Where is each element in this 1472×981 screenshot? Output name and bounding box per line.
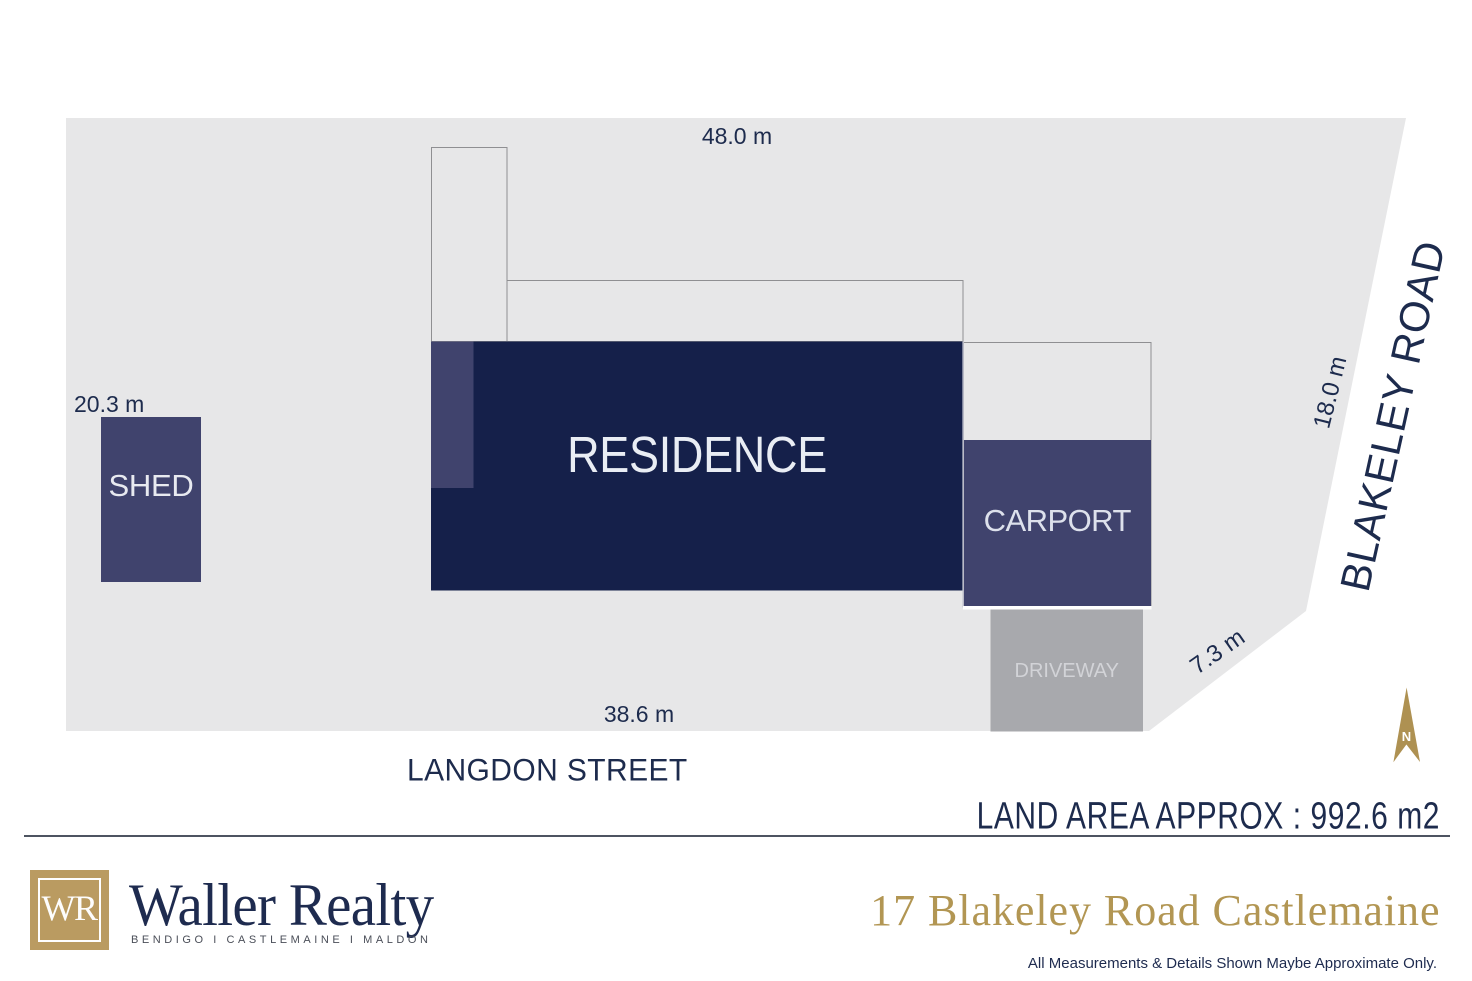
svg-text:N: N	[1402, 729, 1411, 744]
